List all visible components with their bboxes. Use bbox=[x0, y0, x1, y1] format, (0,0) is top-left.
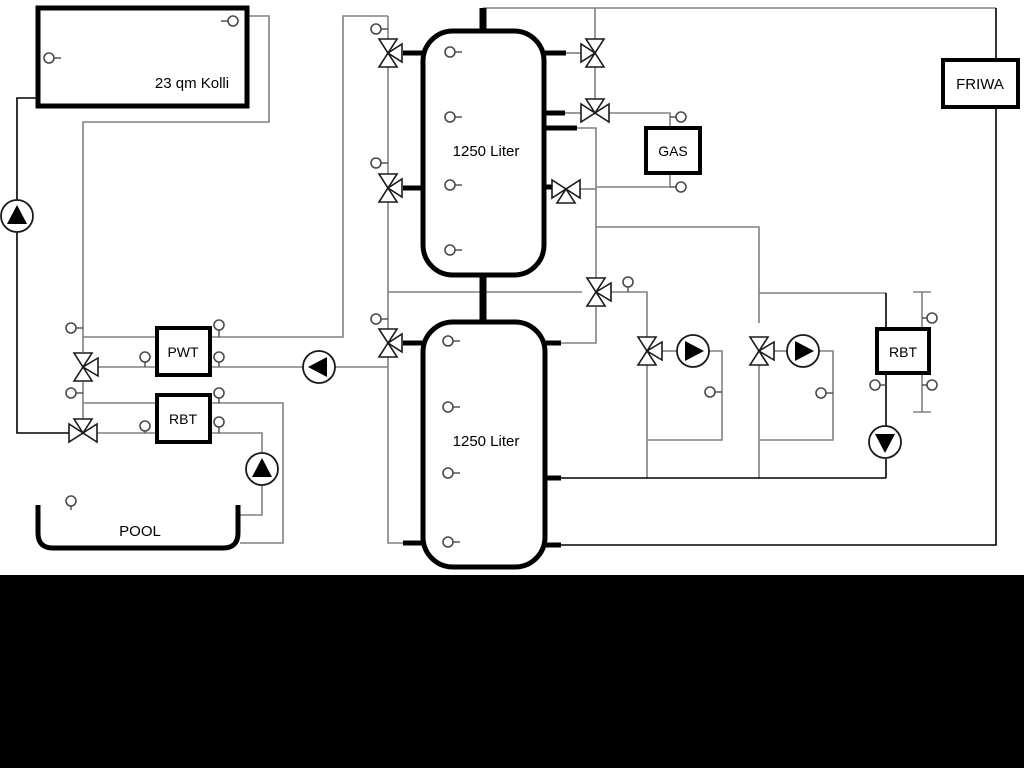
hydraulic-schematic: 23 qm Kolli 1250 Liter 1250 Liter PWT RB… bbox=[0, 0, 1024, 768]
buffer-tank-1-label: 1250 Liter bbox=[453, 143, 520, 160]
friwa-label: FRIWA bbox=[956, 76, 1004, 93]
pump-icon bbox=[869, 426, 901, 458]
gas-label: GAS bbox=[658, 143, 688, 159]
solar-collector-label: 23 qm Kolli bbox=[155, 75, 229, 92]
rbt-right-label: RBT bbox=[889, 344, 917, 360]
bottom-black-band bbox=[0, 575, 1024, 768]
rbt-left-label: RBT bbox=[169, 411, 197, 427]
pump-icon bbox=[677, 335, 709, 367]
pump-icon bbox=[303, 351, 335, 383]
pool-label: POOL bbox=[119, 523, 161, 540]
pump-icon bbox=[1, 200, 33, 232]
buffer-tank-2-label: 1250 Liter bbox=[453, 433, 520, 450]
pump-icon bbox=[246, 453, 278, 485]
pump-icon bbox=[787, 335, 819, 367]
pwt-label: PWT bbox=[167, 344, 199, 360]
